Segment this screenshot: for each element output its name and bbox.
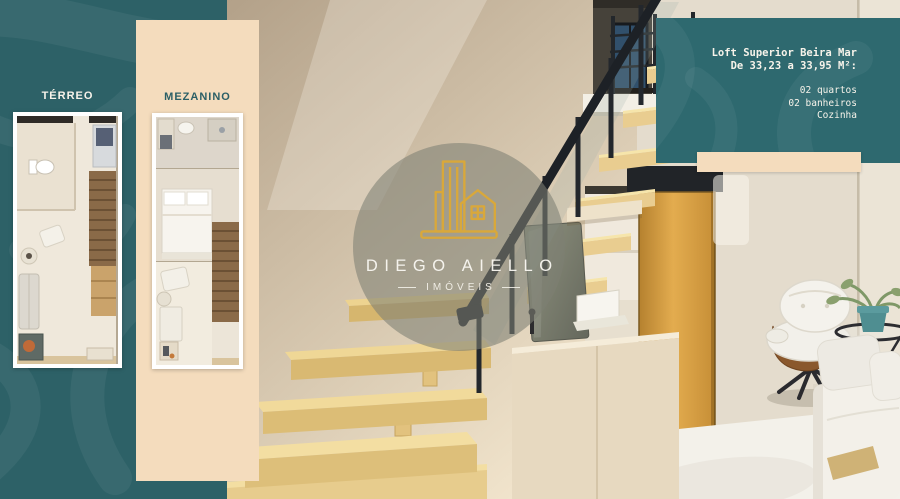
feature-list: 02 quartos 02 banheiros Cozinha	[656, 85, 857, 123]
accent-bar	[697, 152, 861, 172]
dash-right-icon	[502, 287, 520, 289]
feature-item: 02 banheiros	[656, 98, 857, 111]
watermark-logo: DIEGO AIELLO IMÓVEIS	[353, 143, 565, 351]
brand-subtitle-row: IMÓVEIS	[398, 282, 520, 293]
feature-item: Cozinha	[656, 110, 857, 123]
info-title-line2: De 33,23 a 33,95 M²:	[656, 60, 857, 73]
mezanino-floor-plan-image	[156, 117, 239, 365]
plan-bathroom	[17, 123, 75, 210]
plan-stairs	[212, 222, 239, 322]
terreo-floor-plan-image	[17, 116, 118, 364]
terreo-floor-plan	[13, 112, 122, 368]
info-title: Loft Superior Beira Mar De 33,23 a 33,95…	[656, 47, 857, 73]
sofa	[813, 334, 900, 499]
mezanino-label: MEZANINO	[152, 91, 243, 103]
brand-name: DIEGO AIELLO	[359, 257, 558, 276]
dash-left-icon	[398, 287, 416, 289]
plan-closet	[93, 125, 116, 167]
plan-stairs	[89, 171, 116, 316]
terreo-label: TÉRREO	[13, 90, 122, 102]
feature-item: 02 quartos	[656, 85, 857, 98]
brand-subtitle: IMÓVEIS	[422, 282, 496, 293]
plan-bathroom	[156, 117, 239, 169]
buildings-logo-icon	[416, 151, 502, 251]
info-box: Loft Superior Beira Mar De 33,23 a 33,95…	[656, 18, 900, 163]
listing-graphic: TÉRREO MEZANINO	[0, 0, 900, 499]
plan-lounge	[156, 262, 212, 365]
info-title-line1: Loft Superior Beira Mar	[656, 47, 857, 60]
mezanino-floor-plan	[152, 113, 243, 369]
